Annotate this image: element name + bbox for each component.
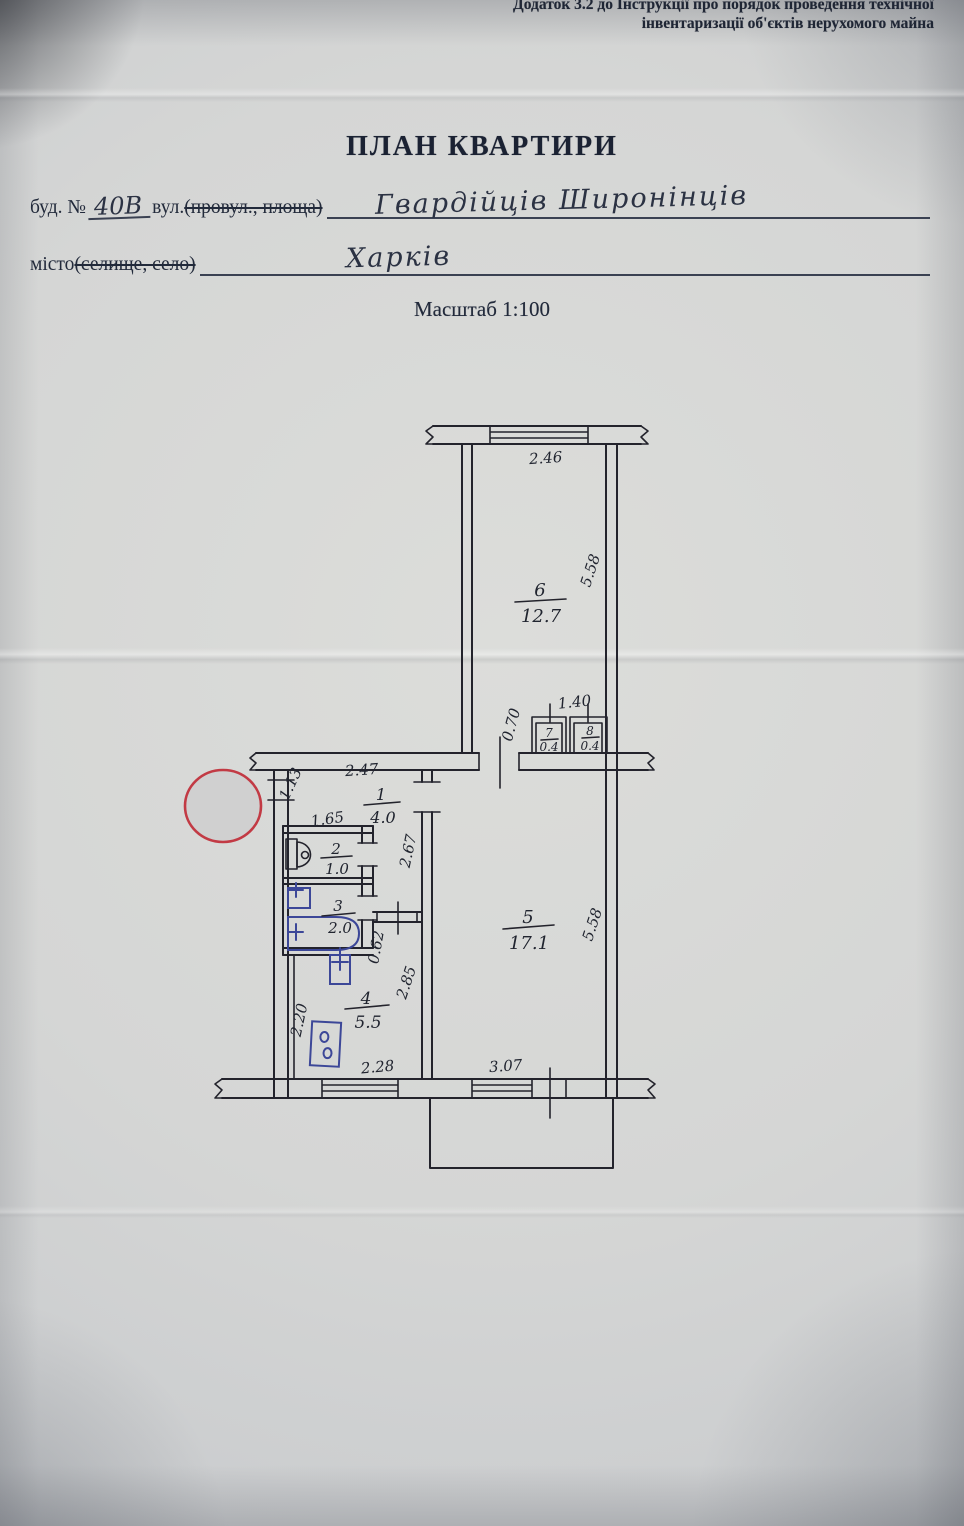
- dim-hall-length: 2.67: [396, 832, 421, 870]
- dim-room5-depth: 5.58: [579, 906, 606, 943]
- hall-room5-divider: [414, 770, 440, 1079]
- sink-icon: [288, 883, 310, 908]
- svg-text:4.0: 4.0: [369, 808, 395, 827]
- room-labels: 1 4.0 2 1.0 3 2.0 4 5.5 5 1: [321, 580, 600, 1033]
- dim-top-window: 2.46: [527, 448, 563, 468]
- door-bathroom: [358, 896, 377, 920]
- balcony-outline: [430, 1098, 613, 1168]
- window-room6: [490, 426, 588, 444]
- top-wall: [426, 426, 648, 444]
- svg-text:0.4: 0.4: [539, 740, 558, 754]
- svg-text:3: 3: [333, 897, 343, 915]
- dim-closets-width: 1.40: [557, 691, 593, 712]
- kitchen-doorway-wall: [373, 902, 422, 934]
- kitchen-sink-icon: [330, 948, 350, 984]
- svg-text:6: 6: [534, 580, 545, 601]
- room6-left-wall: [462, 444, 472, 753]
- round-stamp: [185, 770, 261, 842]
- balcony-door: [550, 1068, 566, 1118]
- dim-room6-depth: 5.58: [577, 552, 604, 589]
- room-label-4: 4 5.5: [345, 989, 389, 1033]
- room-label-5: 5 17.1: [503, 907, 554, 954]
- left-exterior-wall: [268, 770, 294, 1098]
- room-label-2: 2 1.0: [321, 840, 352, 878]
- floor-plan: 1 4.0 2 1.0 3 2.0 4 5.5 5 1: [0, 0, 964, 1526]
- svg-text:1: 1: [376, 785, 386, 804]
- svg-text:2: 2: [330, 840, 341, 858]
- svg-text:12.7: 12.7: [521, 606, 562, 627]
- stove-icon: [310, 1021, 341, 1066]
- room-label-1: 1 4.0: [364, 785, 400, 827]
- dim-kitchen-wall: 2.85: [392, 964, 420, 1002]
- svg-text:1.0: 1.0: [325, 860, 349, 878]
- dim-hall-width: 2.47: [343, 760, 379, 780]
- svg-text:17.1: 17.1: [509, 933, 549, 954]
- svg-text:2.0: 2.0: [327, 919, 352, 937]
- room-label-6: 6 12.7: [515, 580, 566, 627]
- scanned-document-page: Додаток 3.2 до Інструкції про порядок пр…: [0, 0, 964, 1526]
- dim-room5-window: 3.07: [488, 1056, 523, 1076]
- svg-text:8: 8: [586, 724, 594, 738]
- bottom-wall: [215, 1068, 655, 1118]
- room-label-8: 8 0.4: [580, 724, 599, 753]
- svg-text:5.5: 5.5: [354, 1013, 381, 1033]
- dim-kitchen-left: 2.20: [287, 1001, 312, 1039]
- svg-text:0.4: 0.4: [580, 739, 599, 753]
- door-toilet: [358, 843, 377, 866]
- door-hall-room5: [414, 782, 440, 812]
- svg-text:5: 5: [522, 907, 533, 928]
- dim-kitchen-door: 0.62: [364, 929, 388, 965]
- room-label-7: 7 0.4: [539, 726, 558, 754]
- dimension-labels: 2.46 5.58 1.40 0.70 2.47 1.13 1.65 2.67 …: [275, 448, 606, 1078]
- dim-closets-depth: 0.70: [498, 706, 524, 743]
- svg-text:7: 7: [545, 726, 553, 740]
- window-kitchen: [322, 1079, 398, 1098]
- dim-kitchen-window: 2.28: [359, 1057, 395, 1078]
- toilet-icon: [286, 839, 311, 869]
- window-room5: [472, 1079, 532, 1098]
